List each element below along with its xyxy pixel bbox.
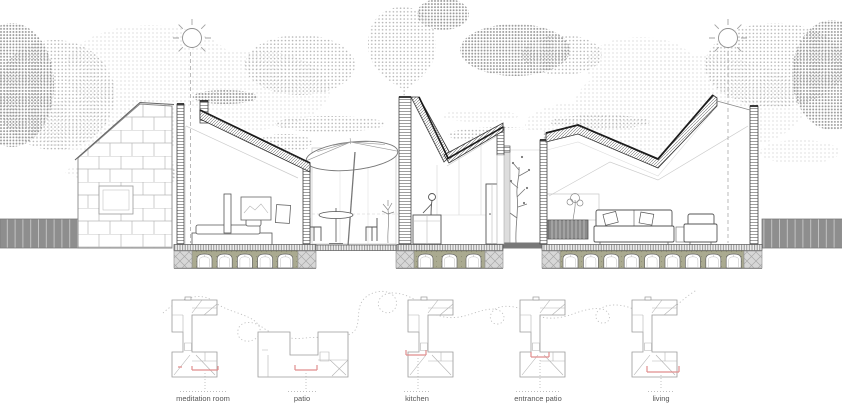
- plan-label-patio: patio: [294, 394, 310, 403]
- foundation-meditation: [174, 251, 316, 269]
- plan-label-living: living: [652, 394, 669, 403]
- plan-living: [632, 297, 679, 377]
- plan-kitchen: [406, 297, 453, 377]
- plan-keys: meditation room patio kitchen entrance p…: [163, 290, 697, 403]
- plan-entrance-patio: [520, 297, 565, 377]
- architectural-drawing-page: meditation room patio kitchen entrance p…: [0, 0, 842, 408]
- plan-label-meditation-room: meditation room: [176, 394, 230, 403]
- section-and-plans-drawing: meditation room patio kitchen entrance p…: [0, 0, 842, 408]
- fence-right: [762, 219, 842, 248]
- section-patio: [304, 133, 399, 246]
- foundation: [174, 245, 762, 269]
- plan-label-entrance-patio: entrance patio: [514, 394, 562, 403]
- foundation-living: [542, 251, 762, 269]
- plan-label-kitchen: kitchen: [405, 394, 429, 403]
- fence-left: [0, 219, 78, 248]
- plan-meditation-room: [172, 297, 218, 377]
- courtyard: [503, 130, 542, 249]
- armchair: [684, 214, 717, 246]
- planter-strip: [503, 243, 542, 249]
- plan-patio: [258, 332, 348, 377]
- chimney-smoke-balloon: [368, 7, 436, 96]
- kitchen-counter: [413, 215, 441, 244]
- radiator: [548, 220, 588, 239]
- foundation-kitchen: [396, 251, 503, 269]
- route-path: [163, 290, 697, 341]
- sofa: [594, 210, 674, 246]
